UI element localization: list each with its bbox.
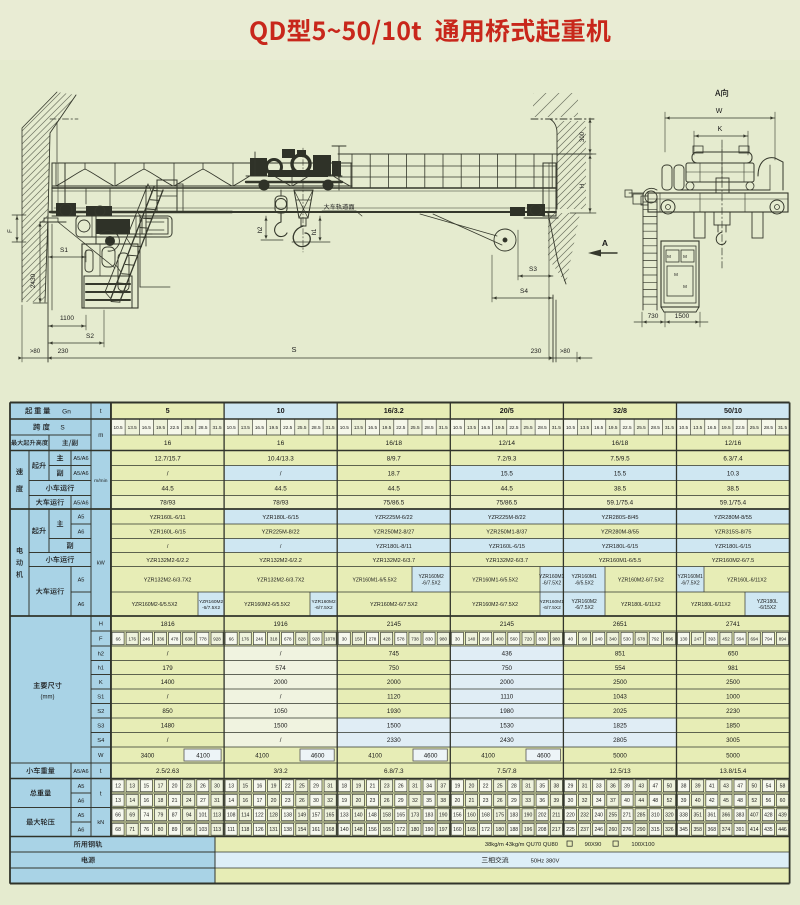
svg-text:140: 140 <box>340 827 349 833</box>
svg-text:374: 374 <box>722 827 731 833</box>
svg-text:230: 230 <box>531 348 542 355</box>
svg-text:YZR160M2: YZR160M2 <box>418 574 444 580</box>
svg-text:2430: 2430 <box>500 737 514 744</box>
svg-text:4100: 4100 <box>255 752 269 759</box>
svg-text:15: 15 <box>143 784 149 790</box>
svg-text:176: 176 <box>242 636 250 641</box>
svg-text:197: 197 <box>439 827 448 833</box>
svg-text:650: 650 <box>728 651 739 658</box>
svg-text:172: 172 <box>397 827 406 833</box>
svg-text:1400: 1400 <box>161 679 175 686</box>
svg-text:YZR160M2-6/7.5X2: YZR160M2-6/7.5X2 <box>370 602 418 608</box>
svg-text:10.5: 10.5 <box>566 425 576 430</box>
svg-text:230: 230 <box>58 348 69 355</box>
svg-text:530: 530 <box>623 636 631 641</box>
svg-text:29: 29 <box>511 798 517 804</box>
svg-text:638: 638 <box>185 636 193 641</box>
svg-text:368: 368 <box>708 827 717 833</box>
svg-text:196: 196 <box>524 827 533 833</box>
svg-text:138: 138 <box>283 827 292 833</box>
svg-text:20: 20 <box>469 784 475 790</box>
svg-text:140: 140 <box>468 636 476 641</box>
svg-text:414: 414 <box>750 827 759 833</box>
svg-text:183: 183 <box>425 813 434 819</box>
svg-text:28.5: 28.5 <box>651 425 661 430</box>
svg-text:25.5: 25.5 <box>184 425 194 430</box>
svg-text:150: 150 <box>355 636 363 641</box>
svg-text:358: 358 <box>693 827 702 833</box>
svg-text:10: 10 <box>277 406 285 415</box>
svg-text:31.5: 31.5 <box>778 425 788 430</box>
svg-text:428: 428 <box>383 636 391 641</box>
svg-text:44: 44 <box>638 798 644 804</box>
svg-text:28: 28 <box>511 784 517 790</box>
svg-text:23: 23 <box>285 798 291 804</box>
svg-text:19: 19 <box>341 798 347 804</box>
svg-text:M: M <box>683 254 687 259</box>
svg-text:37: 37 <box>440 784 446 790</box>
svg-text:22.5: 22.5 <box>283 425 293 430</box>
svg-text:Gn: Gn <box>62 408 71 415</box>
svg-text:YZR160M2: YZR160M2 <box>311 599 336 605</box>
svg-text:YZR180L-6/15: YZR180L-6/15 <box>602 544 638 550</box>
svg-text:33: 33 <box>596 784 602 790</box>
svg-text:10.3: 10.3 <box>727 470 740 477</box>
svg-text:7.5/9.5: 7.5/9.5 <box>610 455 630 462</box>
svg-text:29: 29 <box>568 784 574 790</box>
svg-text:YZR160M1: YZR160M1 <box>540 599 565 605</box>
svg-text:156: 156 <box>368 827 377 833</box>
svg-text:31.5: 31.5 <box>665 425 675 430</box>
svg-text:50Hz 380V: 50Hz 380V <box>531 859 560 865</box>
svg-text:6.8/7.3: 6.8/7.3 <box>384 768 404 775</box>
svg-text:YZR315S-8/75: YZR315S-8/75 <box>714 530 751 536</box>
svg-text:YZR160M2-6/7.5X2: YZR160M2-6/7.5X2 <box>618 578 664 584</box>
svg-text:278: 278 <box>369 636 377 641</box>
svg-text:138: 138 <box>283 813 292 819</box>
svg-text:30: 30 <box>568 798 574 804</box>
svg-text:YZR160M2: YZR160M2 <box>572 599 598 605</box>
svg-text:27: 27 <box>200 798 206 804</box>
svg-text:16/18: 16/18 <box>386 440 403 447</box>
svg-text:2000: 2000 <box>500 679 514 686</box>
svg-text:31: 31 <box>582 784 588 790</box>
svg-text:(mm): (mm) <box>41 695 55 701</box>
svg-text:478: 478 <box>171 636 179 641</box>
svg-text:436: 436 <box>502 651 513 658</box>
svg-text:47: 47 <box>737 784 743 790</box>
svg-text:59.1/75.4: 59.1/75.4 <box>607 500 634 507</box>
svg-text:30: 30 <box>455 636 461 641</box>
svg-text:35: 35 <box>426 798 432 804</box>
svg-text:400: 400 <box>496 636 504 641</box>
svg-text:1110: 1110 <box>500 694 513 701</box>
svg-text:247: 247 <box>694 636 702 641</box>
svg-text:720: 720 <box>524 636 532 641</box>
svg-text:336: 336 <box>157 636 165 641</box>
svg-text:26: 26 <box>497 798 503 804</box>
svg-text:338: 338 <box>679 813 688 819</box>
svg-text:113: 113 <box>213 813 221 819</box>
svg-text:100X100: 100X100 <box>631 842 654 848</box>
svg-text:21: 21 <box>172 798 178 804</box>
svg-text:25.5: 25.5 <box>524 425 534 430</box>
svg-text:391: 391 <box>736 827 745 833</box>
svg-text:75/86.5: 75/86.5 <box>383 500 405 507</box>
svg-text:22.5: 22.5 <box>396 425 406 430</box>
svg-text:1825: 1825 <box>613 723 627 730</box>
svg-text:43: 43 <box>638 784 644 790</box>
svg-text:-6/7.5X2: -6/7.5X2 <box>542 581 561 587</box>
svg-text:5000: 5000 <box>613 752 627 759</box>
svg-text:15.5: 15.5 <box>501 470 514 477</box>
svg-text:750: 750 <box>502 665 513 672</box>
svg-text:38: 38 <box>553 784 559 790</box>
svg-text:148: 148 <box>354 827 363 833</box>
svg-text:1850: 1850 <box>726 723 740 730</box>
svg-text:-6/7.5X2: -6/7.5X2 <box>681 581 700 587</box>
svg-text:S2: S2 <box>86 333 94 340</box>
svg-text:YZR160M2: YZR160M2 <box>199 599 224 605</box>
svg-text:318: 318 <box>270 636 278 641</box>
svg-text:894: 894 <box>779 636 787 641</box>
svg-text:108: 108 <box>227 813 236 819</box>
svg-text:237: 237 <box>580 827 589 833</box>
svg-text:574: 574 <box>275 665 286 672</box>
svg-text:YZR160M1: YZR160M1 <box>678 574 704 580</box>
svg-text:17: 17 <box>257 798 263 804</box>
svg-text:52: 52 <box>667 798 673 804</box>
svg-text:13.5: 13.5 <box>580 425 590 430</box>
svg-text:YZR132M2-6/2.2: YZR132M2-6/2.2 <box>259 558 302 564</box>
svg-text:YZR180L-6/15: YZR180L-6/15 <box>715 544 751 550</box>
svg-text:19.5: 19.5 <box>382 425 392 430</box>
svg-text:90: 90 <box>582 636 588 641</box>
svg-text:173: 173 <box>411 813 420 819</box>
svg-text:13: 13 <box>129 784 135 790</box>
svg-text:25: 25 <box>299 784 305 790</box>
svg-text:407: 407 <box>750 813 759 819</box>
svg-text:165: 165 <box>326 813 335 819</box>
svg-text:60: 60 <box>780 798 786 804</box>
svg-text:A5: A5 <box>78 813 85 819</box>
svg-text:68: 68 <box>115 827 121 833</box>
svg-text:44.5: 44.5 <box>388 485 401 492</box>
svg-text:7.5/7.8: 7.5/7.8 <box>497 768 517 775</box>
svg-text:YZR180L-8/11: YZR180L-8/11 <box>376 544 412 550</box>
svg-text:165: 165 <box>397 813 406 819</box>
svg-text:20/5: 20/5 <box>500 406 514 415</box>
svg-text:149: 149 <box>298 813 307 819</box>
svg-text:/: / <box>280 470 282 477</box>
svg-text:16: 16 <box>143 798 149 804</box>
svg-text:10.4/13.3: 10.4/13.3 <box>267 455 294 462</box>
svg-text:t: t <box>100 408 102 415</box>
svg-text:1050: 1050 <box>274 708 288 715</box>
svg-text:1043: 1043 <box>613 694 627 701</box>
svg-text:38: 38 <box>681 784 687 790</box>
svg-text:351: 351 <box>693 813 702 819</box>
svg-text:K: K <box>99 680 103 686</box>
svg-text:20: 20 <box>271 798 277 804</box>
svg-text:A: A <box>602 238 608 248</box>
svg-text:114: 114 <box>241 813 249 819</box>
svg-text:345: 345 <box>679 827 688 833</box>
svg-text:1916: 1916 <box>273 621 288 628</box>
svg-text:YZR160M1-6/5.5X2: YZR160M1-6/5.5X2 <box>472 578 518 584</box>
svg-text:m/min: m/min <box>94 478 108 484</box>
svg-text:16/3.2: 16/3.2 <box>384 406 404 415</box>
svg-text:12/16: 12/16 <box>725 440 742 447</box>
svg-text:794: 794 <box>765 636 773 641</box>
svg-text:730: 730 <box>648 313 659 320</box>
svg-text:71: 71 <box>129 827 135 833</box>
svg-text:25: 25 <box>497 784 503 790</box>
svg-text:30: 30 <box>214 784 220 790</box>
svg-text:678: 678 <box>284 636 292 641</box>
svg-text:158: 158 <box>382 813 391 819</box>
svg-text:981: 981 <box>728 665 739 672</box>
svg-text:YZR250M2-8/27: YZR250M2-8/27 <box>373 530 414 536</box>
svg-text:103: 103 <box>199 827 208 833</box>
svg-text:211: 211 <box>552 813 560 819</box>
svg-text:23: 23 <box>370 798 376 804</box>
svg-text:13.5: 13.5 <box>128 425 138 430</box>
svg-text:YZR250M1-8/37: YZR250M1-8/37 <box>486 530 527 536</box>
svg-text:850: 850 <box>162 708 173 715</box>
svg-text:YZR180L: YZR180L <box>757 599 778 605</box>
svg-text:M: M <box>667 254 671 259</box>
svg-text:45: 45 <box>723 798 729 804</box>
svg-text:3/3.2: 3/3.2 <box>273 768 288 775</box>
svg-text:1100: 1100 <box>60 315 74 322</box>
svg-text:A6: A6 <box>78 602 85 608</box>
svg-text:22: 22 <box>483 784 489 790</box>
svg-text:113: 113 <box>213 827 221 833</box>
svg-text:29: 29 <box>398 798 404 804</box>
svg-text:32: 32 <box>327 798 333 804</box>
svg-text:S4: S4 <box>520 288 528 295</box>
svg-text:446: 446 <box>778 827 787 833</box>
svg-text:79: 79 <box>158 813 164 819</box>
svg-text:42: 42 <box>709 798 715 804</box>
svg-text:31.5: 31.5 <box>212 425 222 430</box>
svg-text:202: 202 <box>538 813 547 819</box>
svg-text:111: 111 <box>227 827 235 833</box>
svg-text:14: 14 <box>129 798 135 804</box>
svg-text:300: 300 <box>580 131 586 142</box>
svg-text:980: 980 <box>439 636 447 641</box>
svg-text:-6/7.5X2: -6/7.5X2 <box>543 605 561 611</box>
svg-text:h2: h2 <box>258 226 264 233</box>
svg-text:31: 31 <box>214 798 220 804</box>
svg-text:23: 23 <box>483 798 489 804</box>
svg-text:435: 435 <box>764 827 773 833</box>
svg-text:S3: S3 <box>529 266 537 273</box>
svg-text:YZR180L-6/11X2: YZR180L-6/11X2 <box>621 602 661 608</box>
svg-text:m: m <box>98 432 103 439</box>
svg-text:M: M <box>683 284 687 289</box>
svg-text:16.5: 16.5 <box>368 425 378 430</box>
svg-text:276: 276 <box>623 827 632 833</box>
svg-text:2025: 2025 <box>613 708 627 715</box>
svg-text:393: 393 <box>708 636 716 641</box>
svg-text:10.5: 10.5 <box>114 425 124 430</box>
svg-text:928: 928 <box>312 636 320 641</box>
svg-text:14: 14 <box>228 798 234 804</box>
svg-text:18.7: 18.7 <box>388 470 401 477</box>
svg-text:37: 37 <box>610 798 616 804</box>
svg-text:260: 260 <box>609 827 618 833</box>
svg-text:t: t <box>100 790 102 797</box>
svg-text:15: 15 <box>242 784 248 790</box>
svg-text:S1: S1 <box>97 695 104 701</box>
svg-text:19: 19 <box>271 784 277 790</box>
svg-text:19.5: 19.5 <box>156 425 166 430</box>
svg-text:678: 678 <box>637 636 645 641</box>
svg-text:YZR225M-6/22: YZR225M-6/22 <box>375 515 413 521</box>
svg-text:26: 26 <box>200 784 206 790</box>
svg-text:20: 20 <box>172 784 178 790</box>
svg-text:750: 750 <box>389 665 400 672</box>
svg-text:246: 246 <box>594 827 603 833</box>
svg-text:6.3/7.4: 6.3/7.4 <box>723 455 743 462</box>
svg-text:YZR160M1: YZR160M1 <box>539 574 565 580</box>
svg-text:YZR180L-6/15: YZR180L-6/15 <box>262 515 298 521</box>
svg-text:22.5: 22.5 <box>509 425 519 430</box>
svg-text:168: 168 <box>326 827 335 833</box>
svg-text:A5/A6: A5/A6 <box>73 500 88 506</box>
svg-text:YZR280S-8/45: YZR280S-8/45 <box>601 515 638 521</box>
svg-text:180: 180 <box>496 827 505 833</box>
svg-text:YZR160M1-6/5.5X2: YZR160M1-6/5.5X2 <box>352 578 396 584</box>
svg-text:26: 26 <box>384 798 390 804</box>
svg-text:/: / <box>167 470 169 477</box>
svg-text:896: 896 <box>666 636 674 641</box>
svg-text:>80: >80 <box>30 349 41 355</box>
svg-text:2805: 2805 <box>613 737 627 744</box>
svg-text:19.5: 19.5 <box>608 425 618 430</box>
svg-text:YZR180L-6/11X2: YZR180L-6/11X2 <box>691 602 731 608</box>
svg-text:156: 156 <box>453 813 462 819</box>
svg-text:YZR160L-6/11X2: YZR160L-6/11X2 <box>727 578 767 584</box>
svg-text:2230: 2230 <box>726 708 740 715</box>
svg-text:1480: 1480 <box>161 723 175 730</box>
svg-text:31: 31 <box>327 784 333 790</box>
svg-text:26: 26 <box>398 784 404 790</box>
svg-text:165: 165 <box>382 827 391 833</box>
svg-text:21: 21 <box>469 798 475 804</box>
svg-text:kN: kN <box>97 820 104 826</box>
svg-text:36: 36 <box>610 784 616 790</box>
svg-text:48: 48 <box>652 798 658 804</box>
svg-text:240: 240 <box>594 813 603 819</box>
svg-text:74: 74 <box>143 813 149 819</box>
svg-text:kW: kW <box>97 561 106 567</box>
svg-text:13.8/15.4: 13.8/15.4 <box>720 768 747 775</box>
svg-text:YZR160L-6/15: YZR160L-6/15 <box>149 530 185 536</box>
svg-text:2430: 2430 <box>30 273 37 288</box>
svg-text:47: 47 <box>652 784 658 790</box>
svg-text:h2: h2 <box>98 652 104 658</box>
svg-text:F: F <box>8 229 14 233</box>
svg-text:50: 50 <box>667 784 673 790</box>
svg-text:h1: h1 <box>98 666 104 672</box>
svg-text:217: 217 <box>552 827 561 833</box>
svg-text:13.5: 13.5 <box>241 425 251 430</box>
svg-text:2330: 2330 <box>387 737 401 744</box>
svg-text:428: 428 <box>764 813 773 819</box>
svg-text:39: 39 <box>695 784 701 790</box>
svg-text:YZR160M2-6/5.5X2: YZR160M2-6/5.5X2 <box>132 602 178 608</box>
svg-text:439: 439 <box>778 813 787 819</box>
svg-text:25.5: 25.5 <box>297 425 307 430</box>
svg-text:290: 290 <box>637 827 646 833</box>
svg-text:44.5: 44.5 <box>501 485 514 492</box>
svg-text:10.5: 10.5 <box>227 425 237 430</box>
svg-text:28.5: 28.5 <box>198 425 208 430</box>
svg-text:A5/A6: A5/A6 <box>73 456 88 462</box>
svg-text:S2: S2 <box>97 709 104 715</box>
svg-text:59.1/75.4: 59.1/75.4 <box>720 500 747 507</box>
svg-text:12/14: 12/14 <box>499 440 516 447</box>
svg-text:13.5: 13.5 <box>693 425 703 430</box>
svg-text:260: 260 <box>482 636 490 641</box>
svg-text:YZR225M-8/22: YZR225M-8/22 <box>262 530 300 536</box>
svg-text:594: 594 <box>736 636 744 641</box>
svg-text:19.5: 19.5 <box>721 425 731 430</box>
svg-text:32: 32 <box>582 798 588 804</box>
svg-text:20: 20 <box>455 798 461 804</box>
svg-text:54: 54 <box>766 784 772 790</box>
svg-text:30: 30 <box>342 636 348 641</box>
svg-text:28.5: 28.5 <box>538 425 548 430</box>
svg-text:-6/7.5X2: -6/7.5X2 <box>422 581 441 587</box>
svg-text:YZR160M1-6/5.5: YZR160M1-6/5.5 <box>599 558 642 564</box>
svg-text:18: 18 <box>341 784 347 790</box>
svg-text:M: M <box>674 272 678 277</box>
svg-text:12: 12 <box>115 784 121 790</box>
svg-text:40: 40 <box>624 798 630 804</box>
svg-text:2500: 2500 <box>613 679 627 686</box>
svg-text:S3: S3 <box>97 724 104 730</box>
svg-text:96: 96 <box>186 827 192 833</box>
svg-text:140: 140 <box>354 813 363 819</box>
svg-text:246: 246 <box>143 636 151 641</box>
svg-text:12.7/15.7: 12.7/15.7 <box>154 455 181 462</box>
svg-text:1530: 1530 <box>500 723 514 730</box>
svg-text:4100: 4100 <box>368 752 382 759</box>
svg-text:22.5: 22.5 <box>622 425 632 430</box>
svg-text:246: 246 <box>256 636 264 641</box>
svg-text:h1: h1 <box>312 228 318 235</box>
svg-text:13: 13 <box>115 798 121 804</box>
svg-text:18: 18 <box>158 798 164 804</box>
svg-text:A6: A6 <box>78 530 85 536</box>
svg-text:1500: 1500 <box>387 723 401 730</box>
svg-text:183: 183 <box>510 813 519 819</box>
svg-text:554: 554 <box>615 665 626 672</box>
svg-text:26: 26 <box>299 798 305 804</box>
svg-text:2000: 2000 <box>387 679 401 686</box>
svg-text:131: 131 <box>269 827 278 833</box>
svg-text:326: 326 <box>665 827 674 833</box>
svg-text:3400: 3400 <box>141 752 155 759</box>
svg-text:16/18: 16/18 <box>612 440 629 447</box>
svg-text:12.5/13: 12.5/13 <box>609 768 631 775</box>
svg-text:66: 66 <box>115 813 121 819</box>
svg-text:778: 778 <box>199 636 207 641</box>
